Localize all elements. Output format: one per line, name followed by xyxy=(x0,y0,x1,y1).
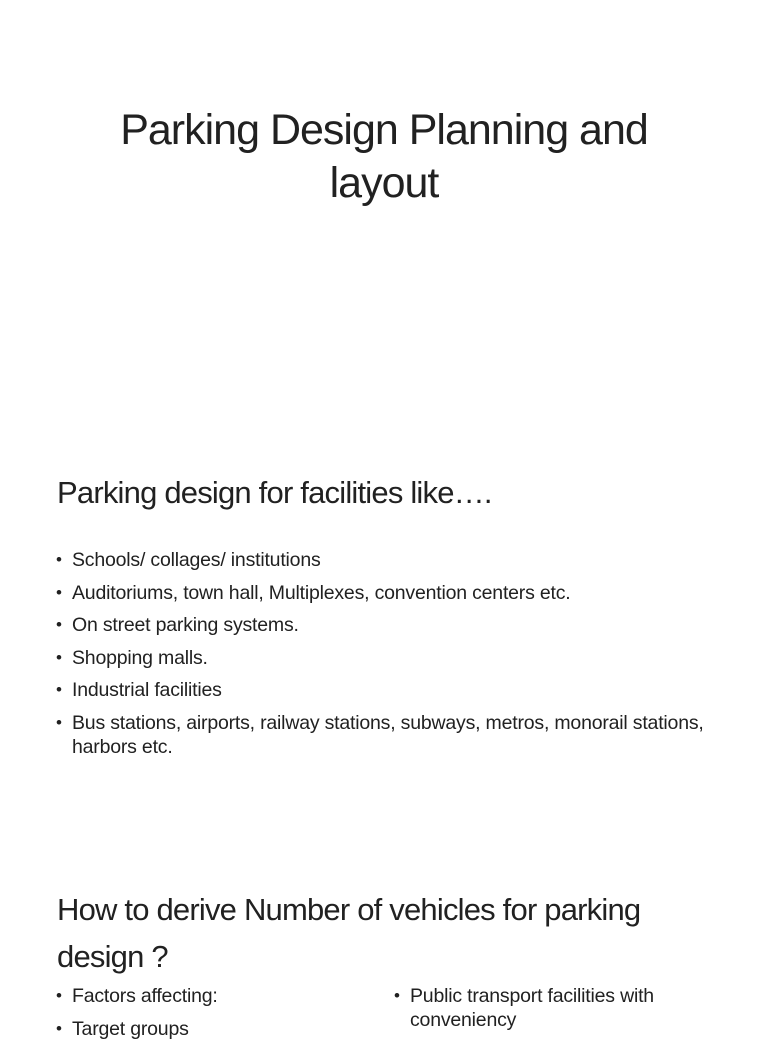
bullet-item: • On street parking systems. xyxy=(56,613,711,637)
bullet-marker: • xyxy=(56,711,72,735)
bullet-item: • Shopping malls. xyxy=(56,646,711,670)
bullet-text: Schools/ collages/ institutions xyxy=(72,548,711,572)
bullet-marker: • xyxy=(56,581,72,605)
bullet-marker: • xyxy=(394,984,410,1008)
bullet-text: Bus stations, airports, railway stations… xyxy=(72,711,711,759)
vehicles-right-bullet-list: • Public transport facilities with conve… xyxy=(394,984,724,1032)
facilities-section-heading: Parking design for facilities like…. xyxy=(57,473,717,513)
bullet-item: • Public transport facilities with conve… xyxy=(394,984,724,1032)
facilities-bullet-list: • Schools/ collages/ institutions • Audi… xyxy=(56,548,711,759)
bullet-text: Factors affecting: xyxy=(72,984,386,1008)
bullet-marker: • xyxy=(56,984,72,1008)
bullet-item: • Industrial facilities xyxy=(56,678,711,702)
bullet-marker: • xyxy=(56,646,72,670)
bullet-marker: • xyxy=(56,613,72,637)
bullet-item: • Factors affecting: xyxy=(56,984,386,1008)
bullet-marker: • xyxy=(56,548,72,572)
bullet-item: • Bus stations, airports, railway statio… xyxy=(56,711,711,759)
bullet-item: • Schools/ collages/ institutions xyxy=(56,548,711,572)
bullet-text: Public transport facilities with conveni… xyxy=(410,984,724,1032)
bullet-marker: • xyxy=(56,1017,72,1041)
bullet-text: Target groups xyxy=(72,1017,386,1041)
bullet-text: Shopping malls. xyxy=(72,646,711,670)
bullet-text: Auditoriums, town hall, Multiplexes, con… xyxy=(72,581,711,605)
vehicles-left-bullet-list: • Factors affecting: • Target groups xyxy=(56,984,386,1041)
vehicles-section-heading: How to derive Number of vehicles for par… xyxy=(57,886,717,980)
bullet-marker: • xyxy=(56,678,72,702)
bullet-text: Industrial facilities xyxy=(72,678,711,702)
bullet-item: • Auditoriums, town hall, Multiplexes, c… xyxy=(56,581,711,605)
title-slide-heading: Parking Design Planning and layout xyxy=(84,104,684,210)
bullet-item: • Target groups xyxy=(56,1017,386,1041)
bullet-text: On street parking systems. xyxy=(72,613,711,637)
document-page: Parking Design Planning and layout Parki… xyxy=(0,0,768,1024)
